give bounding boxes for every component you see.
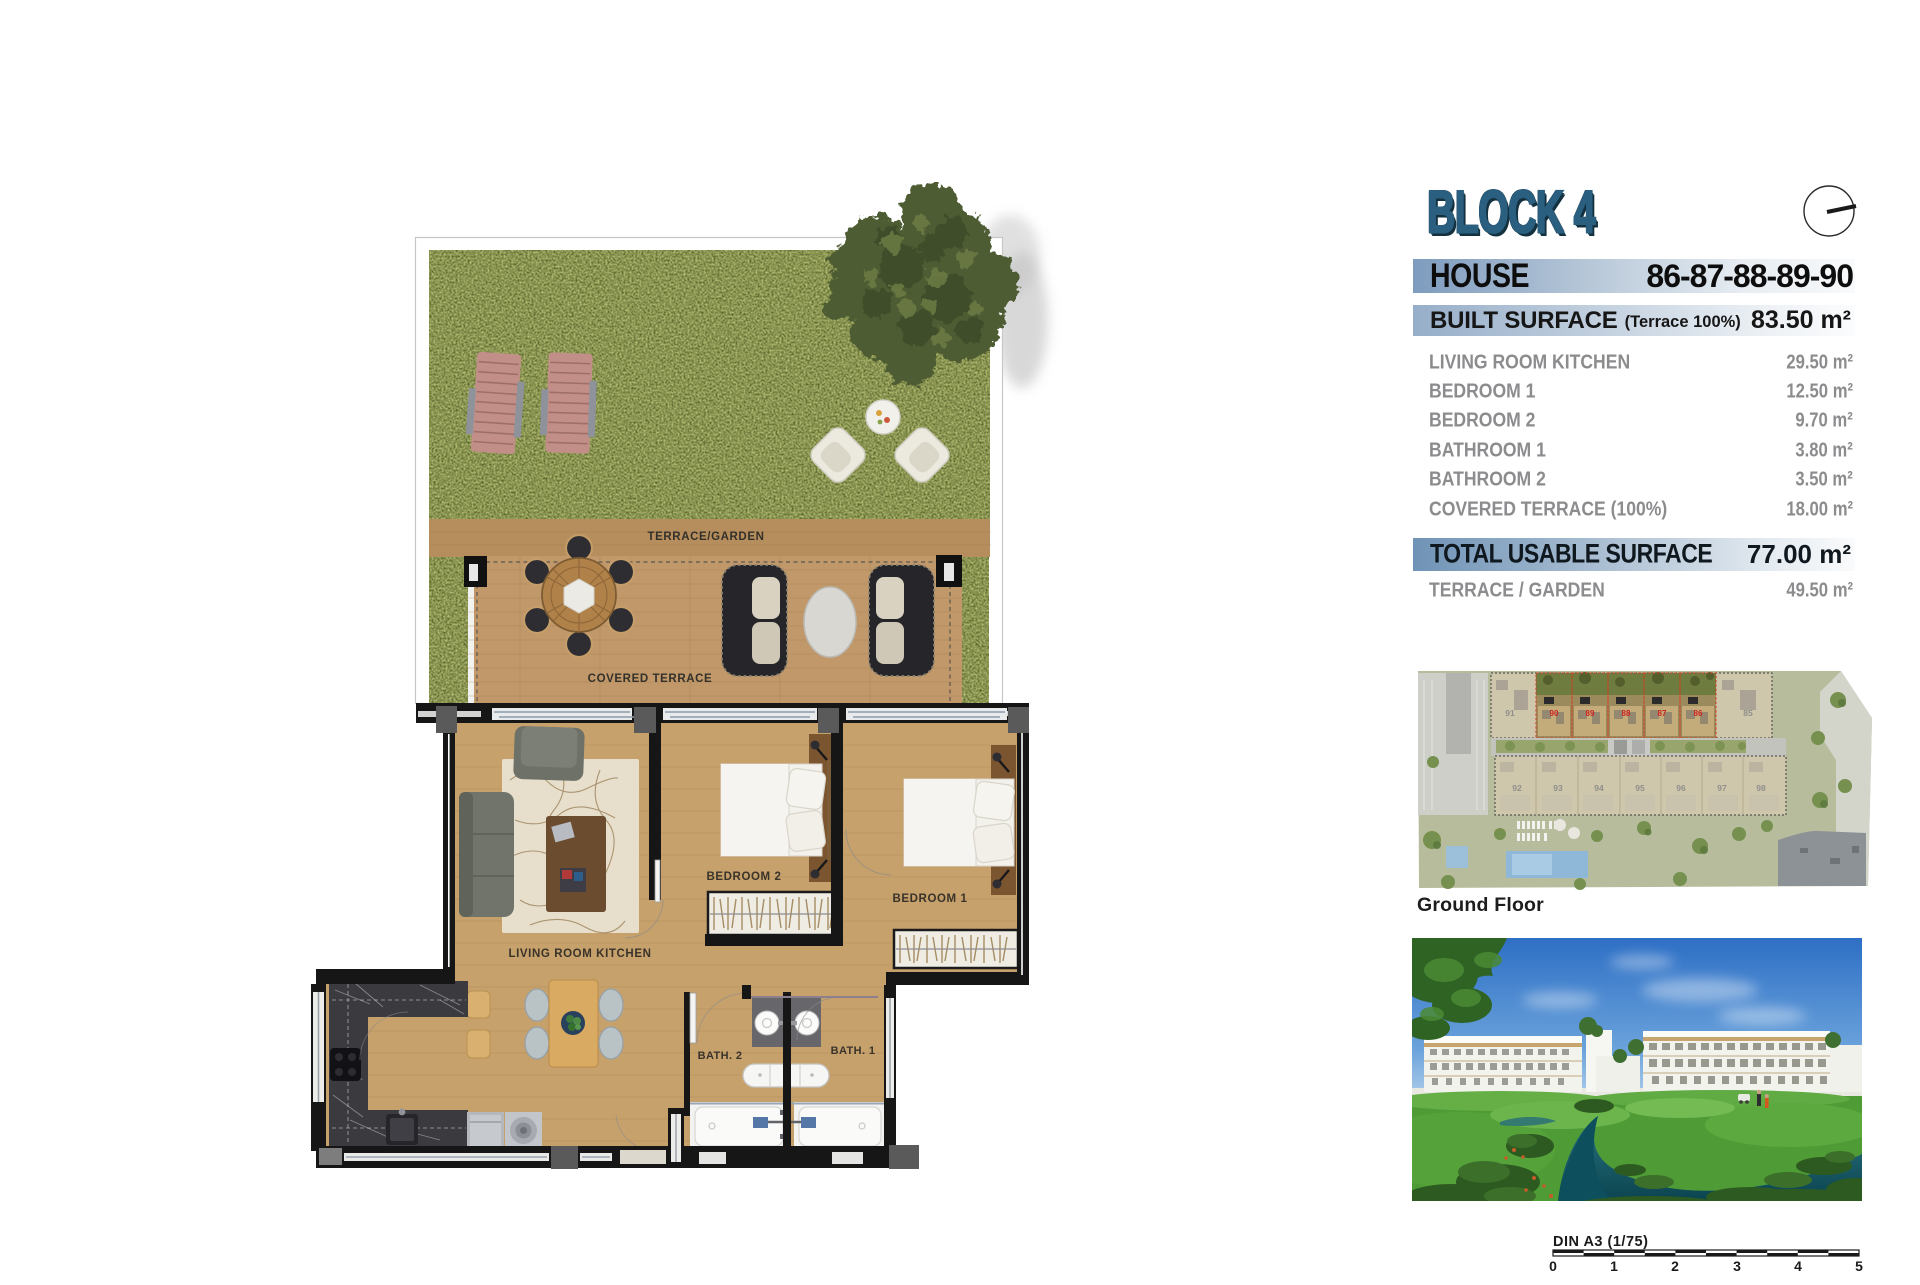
svg-text:87: 87 (1658, 709, 1667, 718)
svg-text:95: 95 (1635, 783, 1645, 793)
svg-text:90: 90 (1550, 709, 1559, 718)
svg-text:COVERED TERRACE: COVERED TERRACE (588, 673, 713, 685)
svg-text:97: 97 (1717, 783, 1727, 793)
svg-text:96: 96 (1676, 783, 1686, 793)
svg-text:89: 89 (1586, 709, 1595, 718)
svg-text:88: 88 (1622, 709, 1631, 718)
svg-text:BATH. 1: BATH. 1 (831, 1045, 876, 1057)
svg-text:92: 92 (1512, 783, 1522, 793)
svg-text:LIVING ROOM KITCHEN: LIVING ROOM KITCHEN (508, 948, 651, 960)
svg-text:BATH. 2: BATH. 2 (698, 1050, 743, 1062)
svg-text:94: 94 (1594, 783, 1604, 793)
svg-text:TERRACE/GARDEN: TERRACE/GARDEN (647, 531, 764, 543)
svg-text:93: 93 (1553, 783, 1563, 793)
svg-text:91: 91 (1505, 708, 1515, 718)
svg-text:85: 85 (1743, 708, 1753, 718)
svg-text:86: 86 (1694, 709, 1703, 718)
svg-text:BEDROOM 1: BEDROOM 1 (892, 893, 967, 905)
svg-text:98: 98 (1756, 783, 1766, 793)
svg-text:BEDROOM 2: BEDROOM 2 (706, 871, 781, 883)
